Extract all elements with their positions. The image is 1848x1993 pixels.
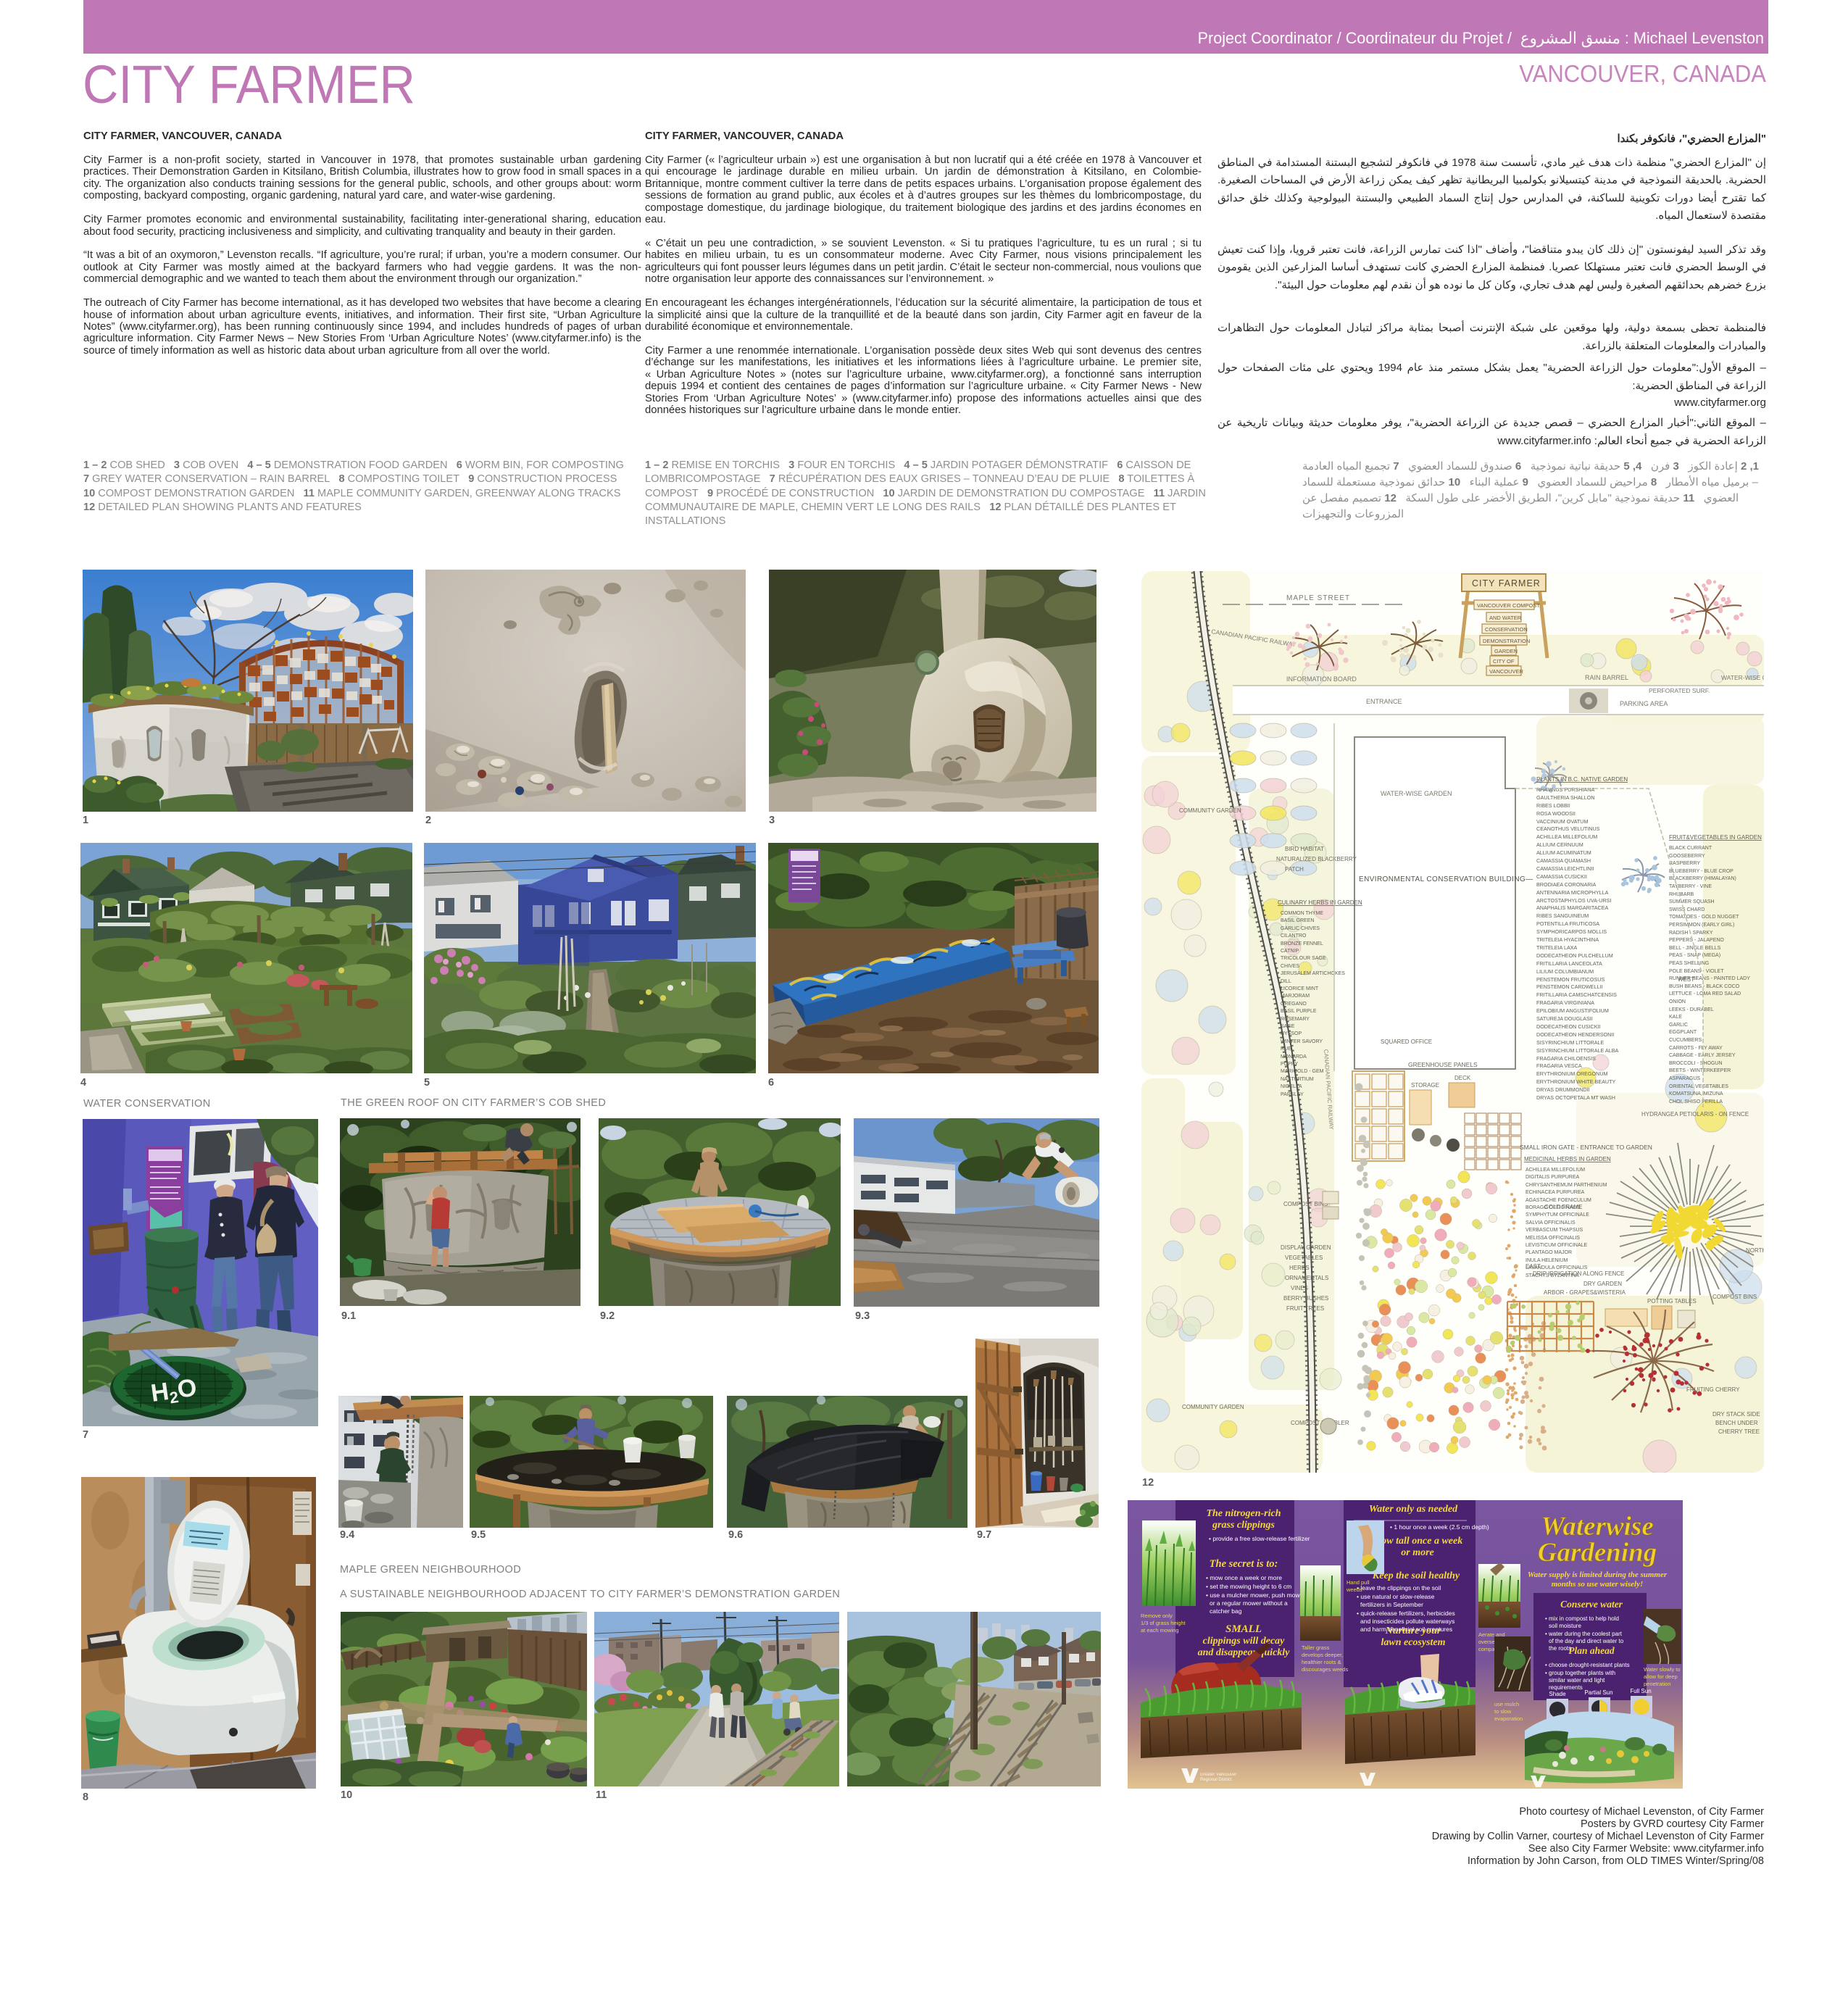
svg-text:Waterwise: Waterwise: [1541, 1512, 1654, 1541]
svg-text:PENSTEMON CARDWELLII: PENSTEMON CARDWELLII: [1536, 983, 1602, 990]
svg-text:CHERRY TREE: CHERRY TREE: [1718, 1428, 1760, 1435]
svg-text:MARIGOLD - GEM: MARIGOLD - GEM: [1281, 1069, 1324, 1074]
svg-text:Taller grass: Taller grass: [1302, 1644, 1330, 1651]
svg-text:Mow tall once a week: Mow tall once a week: [1372, 1536, 1462, 1547]
svg-text:TRITELEIA LAXA: TRITELEIA LAXA: [1536, 944, 1578, 951]
svg-text:SISYRINCHIUM LITTORALE ALBA: SISYRINCHIUM LITTORALE ALBA: [1536, 1047, 1619, 1054]
svg-text:BRONZE FENNEL: BRONZE FENNEL: [1281, 941, 1323, 946]
svg-text:RASPBERRY: RASPBERRY: [1669, 861, 1700, 866]
svg-text:allow for deep: allow for deep: [1644, 1673, 1678, 1680]
svg-text:• 1 hour once a week (2.5 cm d: • 1 hour once a week (2.5 cm depth): [1390, 1523, 1489, 1531]
svg-text:RADISH - SPARKY: RADISH - SPARKY: [1669, 931, 1713, 936]
svg-text:GARLIC CHIVES: GARLIC CHIVES: [1281, 926, 1320, 931]
svg-text:DODECATHEON PULCHELLUM: DODECATHEON PULCHELLUM: [1536, 952, 1613, 959]
svg-text:DIGITALIS PURPUREA: DIGITALIS PURPUREA: [1526, 1175, 1579, 1180]
svg-text:GARDEN: GARDEN: [1494, 648, 1518, 654]
svg-text:BROCCOLI - SHOGUN: BROCCOLI - SHOGUN: [1669, 1061, 1723, 1066]
svg-text:CITY OF: CITY OF: [1493, 658, 1515, 665]
svg-text:COMPOST BINS: COMPOST BINS: [1712, 1294, 1757, 1300]
svg-text:BENCH UNDER: BENCH UNDER: [1715, 1420, 1758, 1426]
svg-text:CITY FARMER: CITY FARMER: [1472, 578, 1541, 588]
svg-text:SATUREJA DOUGLASII: SATUREJA DOUGLASII: [1536, 1015, 1593, 1022]
svg-text:VEGETABLES: VEGETABLES: [1285, 1255, 1323, 1261]
svg-text:catcher bag: catcher bag: [1210, 1607, 1242, 1615]
svg-text:• use a mulcher mower, push mo: • use a mulcher mower, push mower: [1206, 1592, 1305, 1599]
svg-text:• mix in compost to help hold: • mix in compost to help hold: [1545, 1615, 1619, 1622]
svg-text:BERRY BUSHES: BERRY BUSHES: [1283, 1295, 1328, 1302]
svg-text:LEVISTICUM OFFICINALE: LEVISTICUM OFFICINALE: [1526, 1243, 1588, 1248]
svg-text:DODECATHEON HENDERSONII: DODECATHEON HENDERSONII: [1536, 1031, 1614, 1038]
svg-text:SISYRINCHIUM LITTORALE: SISYRINCHIUM LITTORALE: [1536, 1039, 1604, 1046]
svg-text:of the day and direct water to: of the day and direct water to: [1549, 1638, 1624, 1644]
svg-text:grass clippings: grass clippings: [1212, 1520, 1275, 1531]
svg-text:SMALL IRON GATE - ENTRANCE TO: SMALL IRON GATE - ENTRANCE TO GARDEN: [1520, 1144, 1652, 1151]
svg-text:to slow: to slow: [1494, 1708, 1512, 1715]
svg-text:ARCTOSTAPHYLOS UVA-URSI: ARCTOSTAPHYLOS UVA-URSI: [1536, 897, 1611, 904]
svg-text:COMMUNITY GARDEN: COMMUNITY GARDEN: [1182, 1404, 1244, 1410]
svg-text:Gardening: Gardening: [1538, 1538, 1657, 1568]
svg-text:OREGANO: OREGANO: [1281, 1002, 1307, 1007]
svg-text:MELISSA OFFICINALIS: MELISSA OFFICINALIS: [1526, 1236, 1580, 1241]
svg-text:• water during the coolest par: • water during the coolest part: [1545, 1631, 1623, 1637]
svg-text:DRY GARDEN: DRY GARDEN: [1583, 1281, 1622, 1287]
svg-text:AGASTACHE FOENICULUM: AGASTACHE FOENICULUM: [1526, 1198, 1591, 1203]
svg-text:ANAPHALIS MARGARITACEA: ANAPHALIS MARGARITACEA: [1536, 904, 1609, 911]
svg-text:Shade: Shade: [1549, 1691, 1566, 1697]
svg-text:• quick-release fertilizers, h: • quick-release fertilizers, herbicides: [1357, 1610, 1455, 1617]
svg-text:• mow once a week or more: • mow once a week or more: [1206, 1574, 1282, 1581]
svg-text:ROSEMARY: ROSEMARY: [1281, 1017, 1310, 1022]
svg-text:Hand pull: Hand pull: [1347, 1579, 1370, 1586]
svg-text:POLE BEANS - VIOLET: POLE BEANS - VIOLET: [1669, 969, 1724, 974]
svg-text:SUMMER SQUASH: SUMMER SQUASH: [1669, 899, 1715, 904]
svg-text:1/3 of grass height: 1/3 of grass height: [1141, 1620, 1186, 1626]
svg-text:FRAGARIA VIRGINIANA: FRAGARIA VIRGINIANA: [1536, 999, 1594, 1006]
svg-text:The secret is to:: The secret is to:: [1210, 1558, 1278, 1570]
svg-text:COMMON THYME: COMMON THYME: [1281, 911, 1323, 916]
svg-text:DECK: DECK: [1454, 1075, 1471, 1081]
svg-text:DRIP IRRIGATION ALONG FENCE: DRIP IRRIGATION ALONG FENCE: [1533, 1270, 1624, 1277]
svg-text:Keep the soil healthy: Keep the soil healthy: [1372, 1570, 1460, 1581]
svg-text:WINTER SAVORY: WINTER SAVORY: [1281, 1039, 1323, 1044]
svg-text:JERUSALEM ARTICHOKES: JERUSALEM ARTICHOKES: [1281, 971, 1345, 976]
svg-text:FRUIT TREES: FRUIT TREES: [1286, 1305, 1324, 1312]
svg-text:SMALL: SMALL: [1225, 1623, 1262, 1635]
svg-text:RHUBARB: RHUBARB: [1669, 892, 1694, 897]
svg-text:GAULTHERIA SHALLON: GAULTHERIA SHALLON: [1536, 794, 1595, 801]
svg-text:or a regular mower without a: or a regular mower without a: [1210, 1599, 1288, 1607]
svg-text:COLD FRAME: COLD FRAME: [1544, 1204, 1582, 1210]
svg-text:ALLIUM CERNUUM: ALLIUM CERNUUM: [1536, 841, 1583, 848]
svg-text:STORAGE: STORAGE: [1411, 1082, 1439, 1089]
svg-text:BLUEBERRY - BLUE CROP: BLUEBERRY - BLUE CROP: [1669, 869, 1733, 874]
svg-text:DILL: DILL: [1281, 979, 1291, 984]
svg-text:COMPOST TUMBLER: COMPOST TUMBLER: [1291, 1420, 1349, 1426]
svg-text:BEETS - WINTERKEEPER: BEETS - WINTERKEEPER: [1669, 1068, 1731, 1073]
svg-text:POTENTILLA FRUTICOSA: POTENTILLA FRUTICOSA: [1536, 920, 1599, 927]
svg-text:BASIL GREEN: BASIL GREEN: [1281, 918, 1314, 923]
svg-text:FRITILLARIA CAMSCHATCENSIS: FRITILLARIA CAMSCHATCENSIS: [1536, 991, 1617, 998]
svg-text:requirements: requirements: [1549, 1684, 1583, 1691]
svg-text:months so use water wisely!: months so use water wisely!: [1552, 1580, 1644, 1589]
svg-text:RIBES SANGUINEUM: RIBES SANGUINEUM: [1536, 912, 1589, 919]
svg-text:BIRD HABITAT: BIRD HABITAT: [1285, 846, 1324, 852]
svg-text:clippings will decay: clippings will decay: [1203, 1636, 1286, 1647]
svg-text:PEPPERS - JALAPENO: PEPPERS - JALAPENO: [1669, 938, 1724, 943]
svg-text:FRUIT&VEGETABLES IN GARDEN: FRUIT&VEGETABLES IN GARDEN: [1669, 834, 1762, 841]
svg-text:healthier roots &: healthier roots &: [1302, 1659, 1341, 1665]
svg-text:CARROTS - FLY AWAY: CARROTS - FLY AWAY: [1669, 1046, 1723, 1051]
svg-text:INULA HELENIUM: INULA HELENIUM: [1526, 1258, 1568, 1263]
svg-text:SWISS CHARD: SWISS CHARD: [1669, 907, 1705, 912]
svg-text:COMMUNITY GARDEN: COMMUNITY GARDEN: [1179, 807, 1241, 814]
svg-text:and harm beneficial soil creat: and harm beneficial soil creatures: [1360, 1626, 1452, 1633]
svg-text:ENTRANCE: ENTRANCE: [1366, 698, 1402, 705]
svg-text:NASTURTIUM: NASTURTIUM: [1281, 1077, 1314, 1082]
svg-text:weeds: weeds: [1346, 1586, 1362, 1593]
svg-text:PERSIMMON (EARLY GIRL): PERSIMMON (EARLY GIRL): [1669, 923, 1734, 928]
svg-text:CAMASSIA CUSICKII: CAMASSIA CUSICKII: [1536, 873, 1587, 880]
svg-text:use mulch: use mulch: [1494, 1701, 1519, 1707]
svg-text:MEDICINAL HERBS IN GARDEN: MEDICINAL HERBS IN GARDEN: [1524, 1156, 1611, 1162]
svg-text:AND WATER: AND WATER: [1489, 615, 1522, 621]
svg-text:Partial Sun: Partial Sun: [1584, 1689, 1612, 1696]
svg-text:ONION: ONION: [1669, 999, 1686, 1004]
svg-text:discourages weeds: discourages weeds: [1302, 1666, 1348, 1673]
svg-text:CULINARY HERBS IN GARDEN: CULINARY HERBS IN GARDEN: [1278, 899, 1362, 906]
svg-text:WATER-WISE GARDEN: WATER-WISE GARDEN: [1381, 790, 1452, 797]
svg-text:similar water and light: similar water and light: [1549, 1677, 1605, 1684]
svg-text:SQUARED OFFICE: SQUARED OFFICE: [1381, 1039, 1432, 1045]
svg-text:FRAGARIA CHILOENSIS: FRAGARIA CHILOENSIS: [1536, 1055, 1596, 1062]
svg-text:RUE: RUE: [1281, 1047, 1291, 1052]
svg-text:SYMPHORICARPOS MOLLIS: SYMPHORICARPOS MOLLIS: [1536, 928, 1607, 935]
svg-text:ACHILLEA MILLEFOLIUM: ACHILLEA MILLEFOLIUM: [1536, 833, 1597, 840]
svg-text:• choose drought-resistant pla: • choose drought-resistant plants: [1545, 1662, 1630, 1668]
svg-text:DODECATHEON CUSICKII: DODECATHEON CUSICKII: [1536, 1023, 1601, 1030]
svg-text:penetration: penetration: [1644, 1681, 1671, 1687]
svg-text:BLACK CURRANT: BLACK CURRANT: [1669, 846, 1712, 851]
svg-text:BUSH BEANS - BLACK COCO: BUSH BEANS - BLACK COCO: [1669, 984, 1740, 989]
svg-text:RHAMNUS PURSHIANA: RHAMNUS PURSHIANA: [1536, 786, 1594, 793]
svg-text:PATCH: PATCH: [1285, 866, 1304, 873]
svg-text:ALLIUM ACUMINATUM: ALLIUM ACUMINATUM: [1536, 849, 1591, 856]
svg-text:TOMATOES - GOLD NUGGET: TOMATOES - GOLD NUGGET: [1669, 915, 1739, 920]
svg-text:VACCINIUM OVATUM: VACCINIUM OVATUM: [1536, 818, 1588, 825]
svg-text:ARBOR - GRAPES&WISTERIA: ARBOR - GRAPES&WISTERIA: [1544, 1289, 1626, 1296]
svg-text:POTTING TABLES: POTTING TABLES: [1647, 1298, 1697, 1305]
svg-text:FRITILLARIA LANCEOLATA: FRITILLARIA LANCEOLATA: [1536, 960, 1602, 967]
svg-text:MARJORAM: MARJORAM: [1281, 994, 1310, 999]
svg-text:GOOSEBERRY: GOOSEBERRY: [1669, 854, 1705, 859]
svg-text:• set the mowing height to 6 c: • set the mowing height to 6 cm: [1206, 1583, 1291, 1590]
svg-text:ACHILLEA MILLEFOLIUM: ACHILLEA MILLEFOLIUM: [1526, 1168, 1585, 1173]
svg-text:• provide a free slow-release: • provide a free slow-release fertilizer: [1209, 1535, 1310, 1542]
svg-text:CILANTRO: CILANTRO: [1281, 933, 1307, 939]
svg-text:WATER-WISE GARDEN: WATER-WISE GARDEN: [1721, 674, 1764, 681]
svg-text:INFORMATION BOARD: INFORMATION BOARD: [1286, 675, 1357, 683]
svg-text:MONARDA: MONARDA: [1281, 1054, 1307, 1060]
svg-text:EAST: EAST: [1526, 1263, 1541, 1270]
svg-text:PLANTAGO MAJOR: PLANTAGO MAJOR: [1526, 1250, 1572, 1255]
svg-text:RAIN BARREL: RAIN BARREL: [1585, 674, 1628, 681]
svg-text:LEEKS - DURABEL: LEEKS - DURABEL: [1669, 1007, 1714, 1012]
svg-text:CAMASSIA LEICHTLINII: CAMASSIA LEICHTLINII: [1536, 865, 1594, 872]
svg-text:EGGPLANT: EGGPLANT: [1669, 1030, 1697, 1035]
svg-text:• use natural or slow-release: • use natural or slow-release: [1357, 1593, 1435, 1600]
svg-text:CHRYSANTHEMUM PARTHENIUM: CHRYSANTHEMUM PARTHENIUM: [1526, 1183, 1607, 1188]
svg-text:LICORICE MINT: LICORICE MINT: [1281, 986, 1319, 991]
svg-text:BRODIAEA CORONARIA: BRODIAEA CORONARIA: [1536, 881, 1596, 888]
svg-text:ORNAMENTALS: ORNAMENTALS: [1285, 1275, 1328, 1281]
svg-text:LETTUCE - LOMA RED SALAD: LETTUCE - LOMA RED SALAD: [1669, 991, 1741, 997]
svg-text:DRYAS OCTOPETALA MT WASH: DRYAS OCTOPETALA MT WASH: [1536, 1094, 1615, 1101]
svg-text:VERBASCUM THAPSUS: VERBASCUM THAPSUS: [1526, 1228, 1583, 1233]
svg-text:GREENHOUSE PANELS: GREENHOUSE PANELS: [1408, 1061, 1478, 1068]
svg-text:Water slowly to: Water slowly to: [1644, 1666, 1681, 1673]
svg-text:DEMONSTRATION: DEMONSTRATION: [1483, 638, 1530, 644]
svg-text:The nitrogen-rich: The nitrogen-rich: [1206, 1508, 1281, 1519]
svg-text:RIBES LOBBII: RIBES LOBBII: [1536, 802, 1570, 809]
svg-text:PEAS SHELLING: PEAS SHELLING: [1669, 961, 1709, 966]
svg-text:KALE: KALE: [1669, 1015, 1682, 1020]
svg-text:ENVIRONMENTAL CONSERVATION BUI: ENVIRONMENTAL CONSERVATION BUILDING—: [1359, 875, 1533, 883]
svg-text:ERYTHRONIUM WHITE BEAUTY: ERYTHRONIUM WHITE BEAUTY: [1536, 1078, 1615, 1085]
svg-text:HERBS: HERBS: [1289, 1265, 1310, 1271]
svg-text:CHOI, SHISO PERILLA: CHOI, SHISO PERILLA: [1669, 1099, 1723, 1104]
svg-text:fertilizers in September: fertilizers in September: [1360, 1601, 1423, 1608]
svg-text:at each mowing: at each mowing: [1141, 1627, 1179, 1634]
svg-text:Plan ahead: Plan ahead: [1568, 1645, 1615, 1656]
svg-text:MAPLE STREET: MAPLE STREET: [1286, 594, 1350, 602]
svg-text:and disappear quickly: and disappear quickly: [1198, 1647, 1291, 1658]
svg-text:Full Sun: Full Sun: [1630, 1688, 1651, 1694]
svg-text:DISPLAY GARDEN: DISPLAY GARDEN: [1281, 1244, 1331, 1251]
svg-text:DRY STACK SIDE: DRY STACK SIDE: [1712, 1411, 1760, 1418]
svg-text:the roots: the roots: [1549, 1645, 1571, 1652]
svg-text:BASIL PURPLE: BASIL PURPLE: [1281, 1009, 1317, 1014]
svg-text:HYDRANGEA PETIOLARIS - ON FENC: HYDRANGEA PETIOLARIS - ON FENCE: [1641, 1111, 1749, 1118]
svg-text:LILIUM COLUMBIANUM: LILIUM COLUMBIANUM: [1536, 968, 1594, 975]
svg-text:EPILOBIUM ANGUSTIFOLIUM: EPILOBIUM ANGUSTIFOLIUM: [1536, 1007, 1609, 1014]
svg-text:COMPOST BINS: COMPOST BINS: [1283, 1201, 1328, 1207]
svg-text:POPPY: POPPY: [1281, 1062, 1298, 1067]
svg-text:HYSSOP: HYSSOP: [1281, 1031, 1302, 1036]
svg-text:Water only as needed: Water only as needed: [1369, 1504, 1458, 1515]
svg-text:ANTENNARIA MICROPHYLLA: ANTENNARIA MICROPHYLLA: [1536, 889, 1609, 896]
svg-text:TRICOLOUR SAGE: TRICOLOUR SAGE: [1281, 956, 1326, 961]
svg-text:PEAS - SNAP (MEGA): PEAS - SNAP (MEGA): [1669, 953, 1720, 958]
svg-text:• group together plants with: • group together plants with: [1545, 1670, 1615, 1676]
svg-text:Water supply is limited during: Water supply is limited during the summe…: [1528, 1570, 1668, 1579]
svg-text:WEST: WEST: [1678, 976, 1694, 983]
svg-text:CHIVES: CHIVES: [1281, 964, 1299, 969]
svg-text:ASPARAGUS: ASPARAGUS: [1669, 1076, 1700, 1081]
svg-text:PERFORATED SURF.: PERFORATED SURF.: [1649, 687, 1710, 694]
svg-text:CABBAGE - EARLY JERSEY: CABBAGE - EARLY JERSEY: [1669, 1053, 1736, 1058]
svg-text:CONSERVATION: CONSERVATION: [1485, 626, 1528, 633]
svg-text:PLANTS IN B.C. NATIVE GARDEN: PLANTS IN B.C. NATIVE GARDEN: [1536, 776, 1628, 783]
svg-text:ERYTHRONIUM OREGONUM: ERYTHRONIUM OREGONUM: [1536, 1070, 1608, 1077]
svg-text:ECHINACEA PURPUREA: ECHINACEA PURPUREA: [1526, 1190, 1585, 1195]
svg-text:develops deeper,: develops deeper,: [1302, 1652, 1343, 1658]
svg-text:evaporation: evaporation: [1494, 1715, 1523, 1722]
svg-text:Conserve water: Conserve water: [1560, 1599, 1623, 1610]
svg-text:ROSA WOODSII: ROSA WOODSII: [1536, 810, 1576, 817]
svg-text:CATNIP: CATNIP: [1281, 949, 1299, 954]
svg-text:Greater Vancouver: Greater Vancouver: [1200, 1773, 1236, 1777]
svg-text:ORIENTAL VEGETABLES: ORIENTAL VEGETABLES: [1669, 1084, 1728, 1089]
svg-text:and insecticides pollute water: and insecticides pollute waterways: [1360, 1618, 1454, 1625]
svg-text:SAGE: SAGE: [1281, 1024, 1295, 1029]
svg-text:CUCUMBERS: CUCUMBERS: [1669, 1038, 1702, 1043]
svg-text:VANCOUVER COMPOST: VANCOUVER COMPOST: [1477, 602, 1540, 609]
svg-text:TAYBERRY - VINE: TAYBERRY - VINE: [1669, 884, 1712, 889]
svg-text:CAMASSIA QUAMASH: CAMASSIA QUAMASH: [1536, 857, 1591, 864]
svg-text:NATURALIZED BLACKBERRY: NATURALIZED BLACKBERRY: [1276, 856, 1357, 862]
svg-text:VANCOUVER: VANCOUVER: [1489, 668, 1524, 675]
svg-text:PARKING AREA: PARKING AREA: [1620, 700, 1668, 707]
svg-text:SALVIA OFFICINALIS: SALVIA OFFICINALIS: [1526, 1220, 1576, 1226]
svg-text:KOMATSUNA, MIZUNA: KOMATSUNA, MIZUNA: [1669, 1091, 1723, 1097]
svg-text:soil moisture: soil moisture: [1549, 1623, 1581, 1629]
svg-text:BLACKBERRY (HIMALAYAN): BLACKBERRY (HIMALAYAN): [1669, 876, 1736, 881]
svg-text:GARLIC: GARLIC: [1669, 1023, 1688, 1028]
svg-text:NIGELLA: NIGELLA: [1281, 1084, 1302, 1089]
svg-text:PENSTEMON FRUTICOSUS: PENSTEMON FRUTICOSUS: [1536, 976, 1604, 983]
svg-text:DRYAS DRUMMONDII: DRYAS DRUMMONDII: [1536, 1086, 1590, 1093]
svg-text:CEANOTHUS VELUTINUS: CEANOTHUS VELUTINUS: [1536, 825, 1600, 832]
svg-text:PARSLEY: PARSLEY: [1281, 1092, 1304, 1097]
svg-text:lawn ecosystem: lawn ecosystem: [1381, 1637, 1445, 1648]
svg-text:Remove only: Remove only: [1141, 1613, 1173, 1619]
svg-text:FRAGARIA VESCA: FRAGARIA VESCA: [1536, 1062, 1582, 1069]
svg-text:Regional District: Regional District: [1200, 1778, 1232, 1782]
svg-text:or more: or more: [1401, 1547, 1434, 1558]
svg-text:VINES: VINES: [1291, 1285, 1308, 1291]
svg-text:TRITELEIA HYACINTHINA: TRITELEIA HYACINTHINA: [1536, 936, 1599, 943]
svg-text:SYMPHYTUM OFFICINALE: SYMPHYTUM OFFICINALE: [1526, 1212, 1589, 1218]
